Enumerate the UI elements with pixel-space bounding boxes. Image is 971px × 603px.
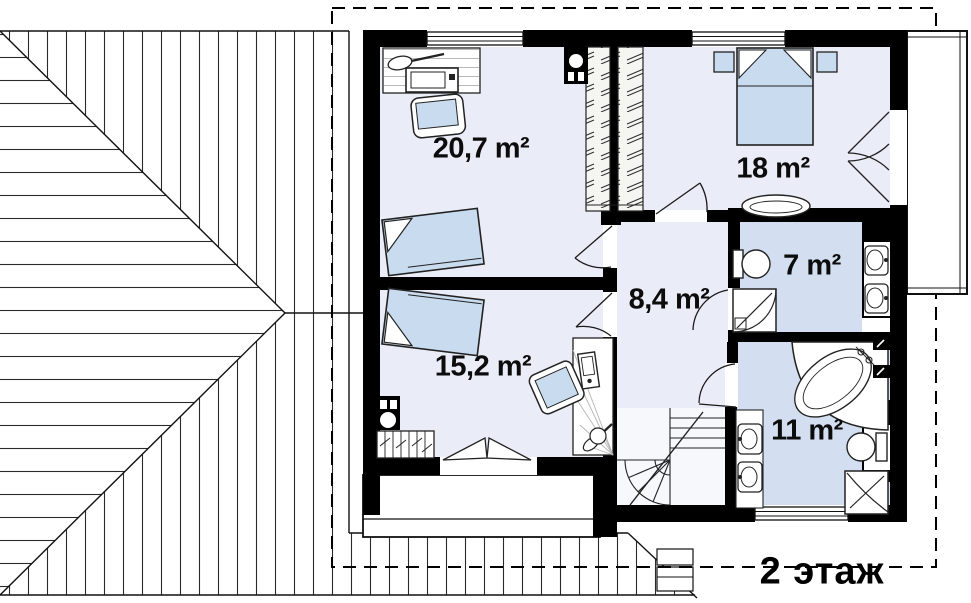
window-cabinet (427, 32, 523, 45)
chimney-icon (564, 47, 588, 84)
room-label-room-lower: 15,2 m² (435, 351, 531, 384)
floor-plan-page: 20,7 m² 18 m² 8,4 m² 7 m² 15,2 m² 11 m² … (0, 0, 971, 603)
bed-icon (382, 288, 484, 355)
floor-label: 2 этаж (760, 551, 885, 594)
window-bathroom-large (755, 507, 848, 520)
room-label-bathroom-large: 11 m² (771, 415, 843, 448)
floor-plan-drawing (0, 0, 971, 603)
toilet-icon (847, 433, 887, 461)
shower-icon (845, 471, 888, 514)
bed-icon (382, 208, 484, 275)
vanity-icon (742, 195, 810, 217)
desk-icon (383, 48, 480, 93)
terrace-region (363, 475, 600, 537)
radiator-icon (377, 431, 434, 458)
room-label-hall: 8,4 m² (629, 284, 710, 317)
toilet-icon (733, 250, 770, 278)
sink-icon (736, 410, 763, 508)
balcony-region (907, 31, 967, 294)
roof-chimney (657, 549, 693, 591)
nightstand-icon (714, 52, 734, 72)
room-label-bedroom: 18 m² (736, 153, 809, 186)
room-label-bathroom-small: 7 m² (783, 250, 841, 283)
nightstand-icon (817, 52, 837, 72)
window-bedroom (692, 32, 785, 45)
shower-icon (733, 289, 776, 332)
room-label-cabinet: 20,7 m² (433, 133, 529, 166)
boiler-icon (377, 396, 400, 430)
stair-region (617, 408, 725, 505)
